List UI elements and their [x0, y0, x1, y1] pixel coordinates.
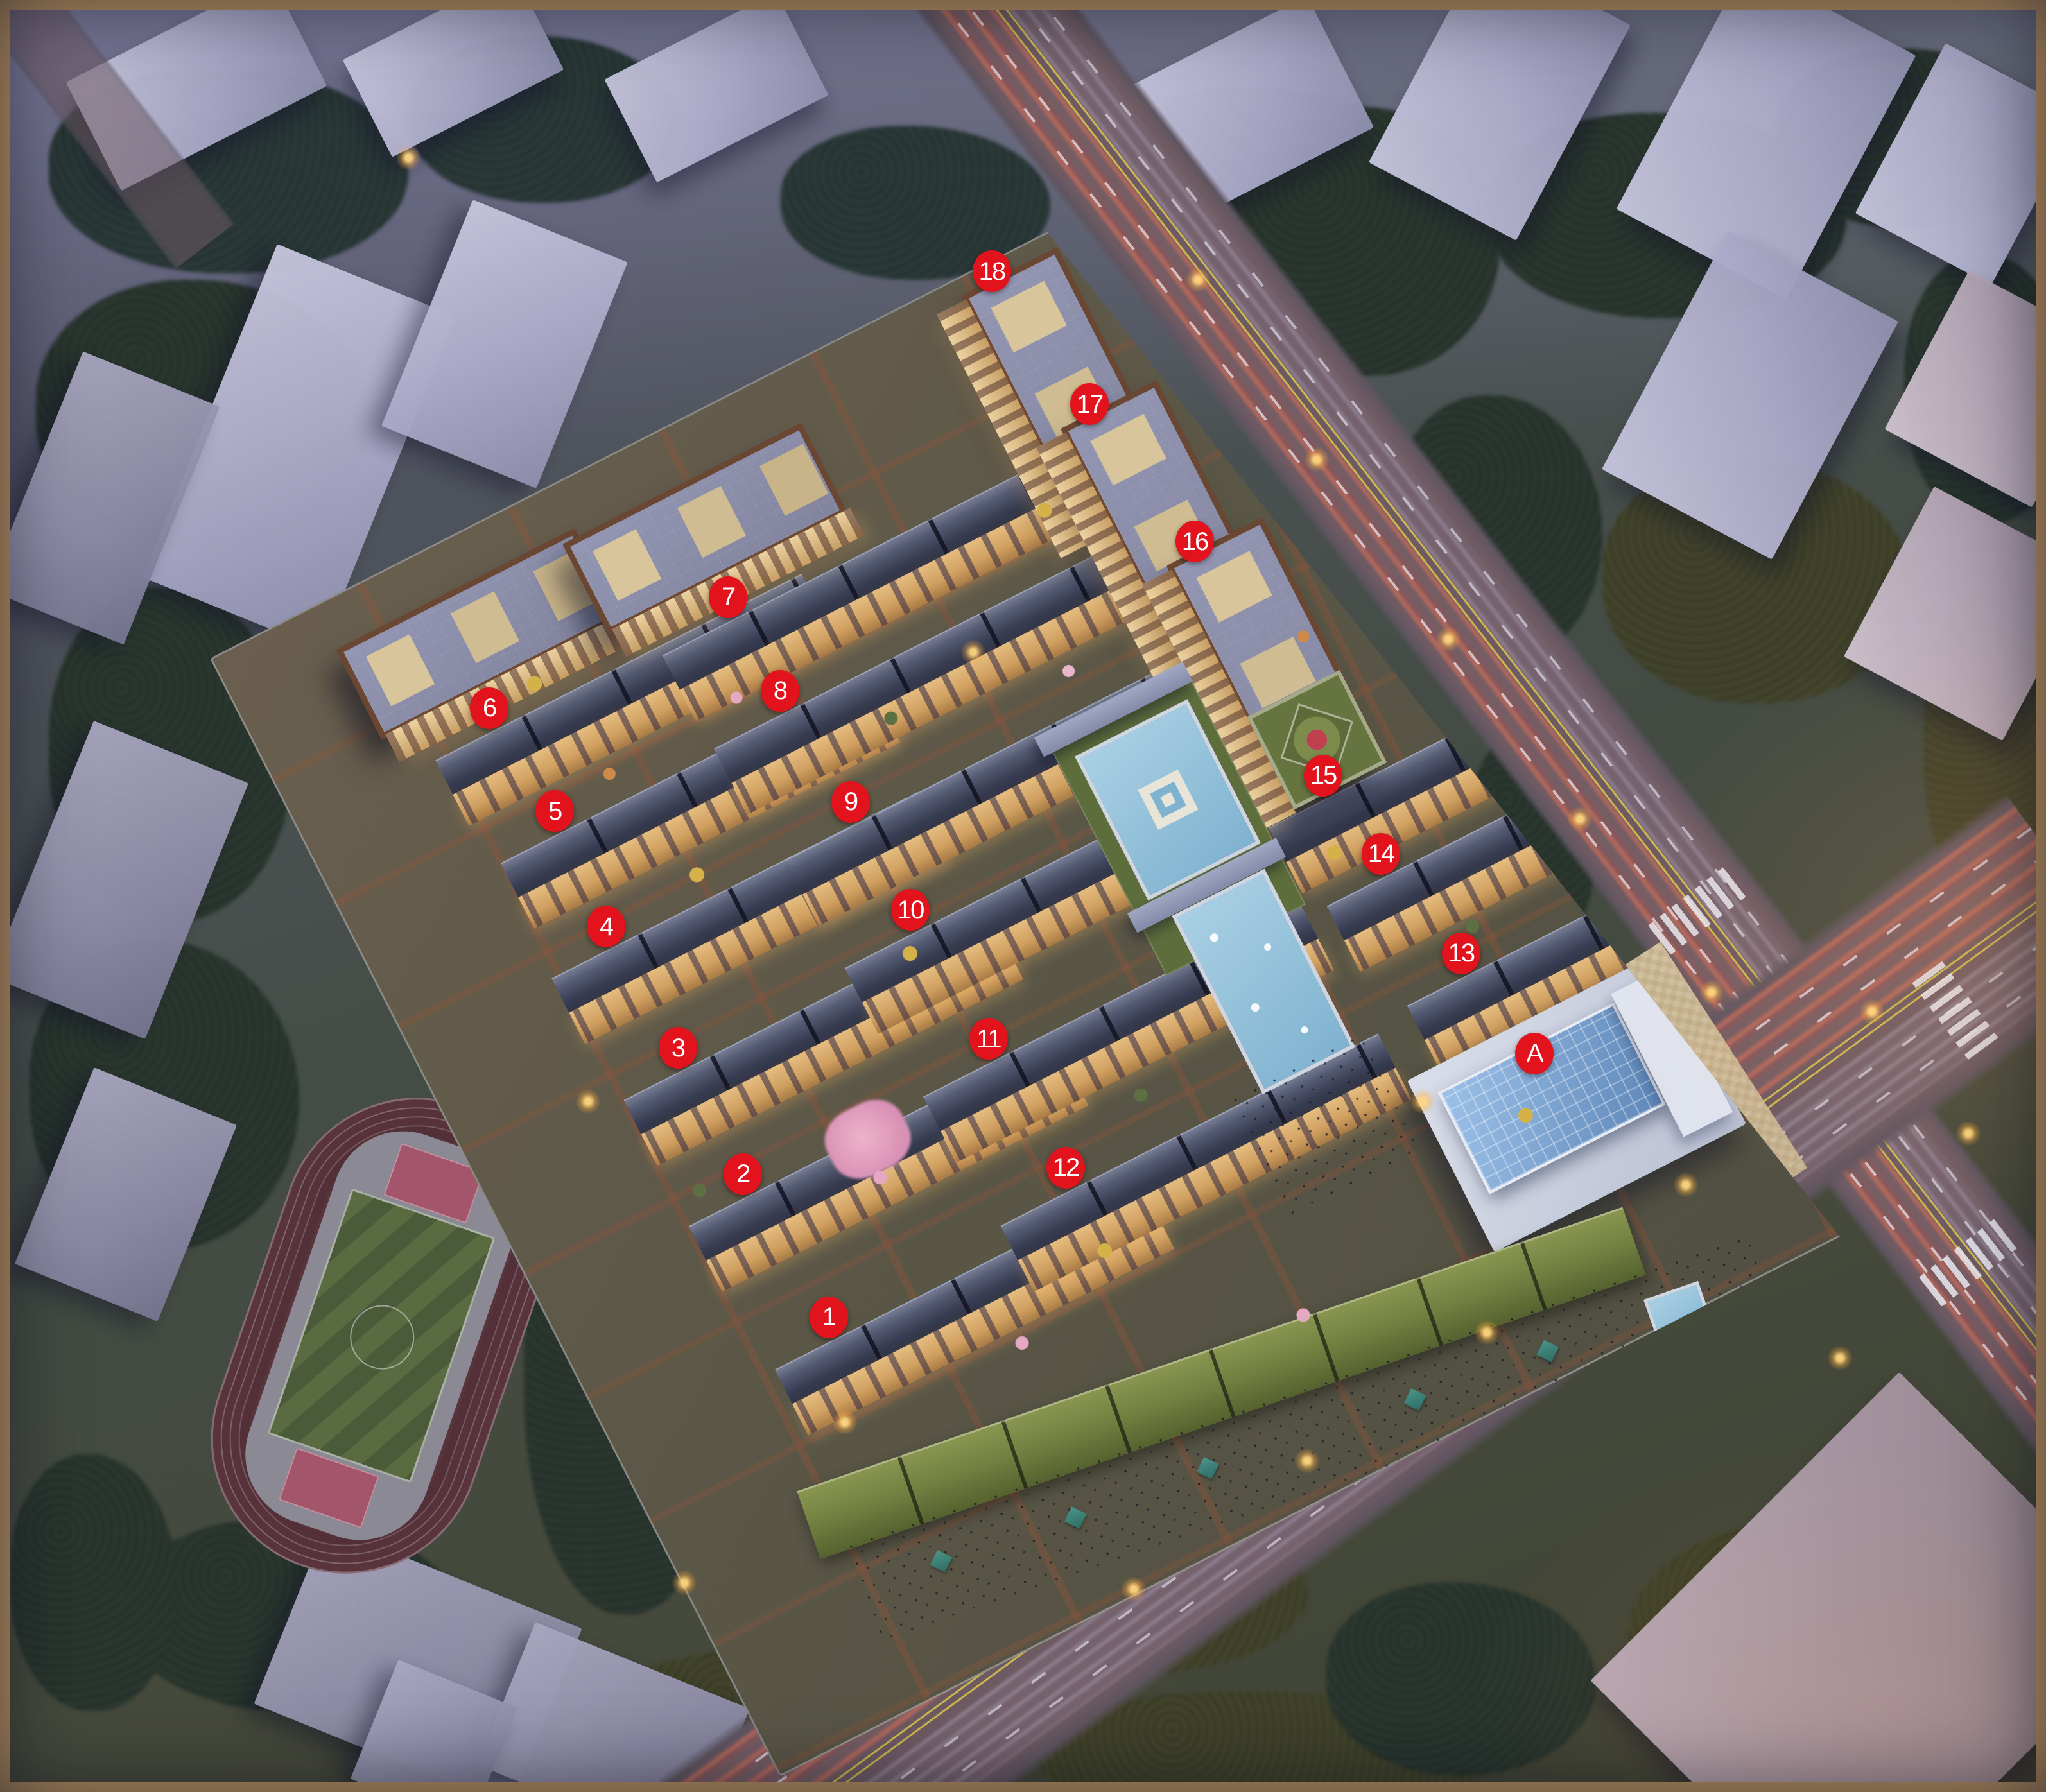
- building-marker-14: 14: [1362, 833, 1400, 875]
- building-marker-13: 13: [1442, 933, 1480, 974]
- building-marker-layer: 123456789101112131415161718A: [10, 10, 2036, 1782]
- building-marker-9: 9: [831, 781, 870, 823]
- building-marker-6: 6: [470, 687, 508, 729]
- building-marker-18: 18: [973, 250, 1011, 292]
- building-marker-A: A: [1515, 1033, 1554, 1074]
- building-marker-10: 10: [891, 889, 930, 931]
- building-marker-3: 3: [659, 1027, 697, 1069]
- building-marker-4: 4: [587, 906, 625, 947]
- masterplan-rendering: Dusk aerial rendering of a residential d…: [0, 0, 2046, 1792]
- building-marker-5: 5: [535, 790, 574, 832]
- building-marker-17: 17: [1070, 383, 1109, 425]
- building-marker-1: 1: [810, 1297, 848, 1338]
- building-marker-8: 8: [761, 670, 799, 712]
- building-marker-12: 12: [1046, 1147, 1085, 1189]
- building-marker-2: 2: [724, 1153, 762, 1195]
- building-marker-15: 15: [1304, 755, 1342, 797]
- building-marker-7: 7: [709, 576, 747, 618]
- building-marker-11: 11: [969, 1018, 1008, 1060]
- building-marker-16: 16: [1175, 521, 1214, 562]
